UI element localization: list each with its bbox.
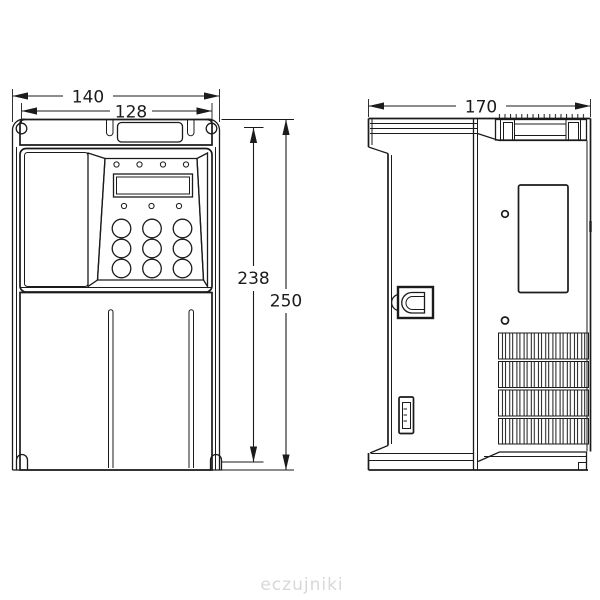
led-indicator xyxy=(160,162,165,167)
keypad-button xyxy=(112,239,131,258)
led-indicator xyxy=(121,203,126,208)
dimension-mounting-height-238: 238 xyxy=(222,128,270,463)
front-lip-bevel-bottom xyxy=(370,446,388,454)
left-door-panel xyxy=(25,153,89,287)
dimension-front-height-250: 250 xyxy=(222,120,303,471)
screw-hole-upper xyxy=(502,211,509,218)
led-indicators-top xyxy=(114,162,189,167)
keypad-button xyxy=(112,219,131,238)
keypad-button xyxy=(143,219,162,238)
lower-cover xyxy=(13,293,222,471)
cap-slot-right xyxy=(188,120,195,136)
dim-label-128: 128 xyxy=(115,103,147,123)
serrated-strip xyxy=(497,114,586,119)
screw-hole-lower xyxy=(502,317,509,324)
latch-slot-inner xyxy=(406,297,425,310)
dim-label-170: 170 xyxy=(465,98,497,118)
front-view xyxy=(13,119,222,470)
bottom-foot xyxy=(478,452,587,470)
cover-seam-left xyxy=(109,310,114,468)
led-indicator xyxy=(183,162,188,167)
led-indicator xyxy=(176,203,181,208)
hook-left-inner xyxy=(504,123,513,141)
vent-row xyxy=(499,390,589,416)
front-lip-bevel-top xyxy=(369,147,389,154)
keypad-button xyxy=(173,219,192,238)
display-inner xyxy=(117,177,190,194)
keypad-buttons xyxy=(112,219,192,278)
dim-label-140: 140 xyxy=(72,88,104,108)
lower-cover-outline xyxy=(20,293,212,471)
vent-row xyxy=(499,362,589,388)
hook-right-inner xyxy=(569,123,579,141)
keypad-button xyxy=(173,259,192,278)
top-cap-outline xyxy=(20,120,212,146)
side-outline xyxy=(369,119,591,471)
led-indicator xyxy=(137,162,142,167)
dim-label-238: 238 xyxy=(237,269,269,289)
led-indicators-mid xyxy=(121,203,181,208)
display-screen xyxy=(114,174,193,197)
cover-seam-right xyxy=(189,310,194,468)
led-indicator xyxy=(114,162,119,167)
mounting-slot-bottom-left xyxy=(17,455,28,470)
keypad-button xyxy=(143,239,162,258)
terminal-cover-plate xyxy=(519,185,569,293)
keypad-bezel xyxy=(20,149,212,293)
side-port xyxy=(399,397,414,434)
keypad-button xyxy=(112,259,131,278)
led-indicator xyxy=(149,203,154,208)
mounting-hole-top-left xyxy=(16,123,27,134)
cap-slot-left xyxy=(107,120,114,136)
latch-clip xyxy=(392,287,433,318)
technical-drawing-page: 140 128 238 xyxy=(0,0,600,600)
vent-grille xyxy=(499,333,589,444)
vent-row xyxy=(499,419,589,445)
dim-label-250: 250 xyxy=(270,292,302,312)
keypad-button xyxy=(143,259,162,278)
cap-window xyxy=(118,123,183,143)
vent-row xyxy=(499,333,589,359)
keypad-wing-left xyxy=(88,153,105,287)
vfd-dimension-drawing: 140 128 238 xyxy=(0,0,600,600)
watermark-text: eczujniki xyxy=(260,575,343,595)
top-cap xyxy=(20,120,212,146)
side-view xyxy=(369,114,591,470)
keypad-button xyxy=(173,239,192,258)
foot-notch xyxy=(579,463,587,471)
